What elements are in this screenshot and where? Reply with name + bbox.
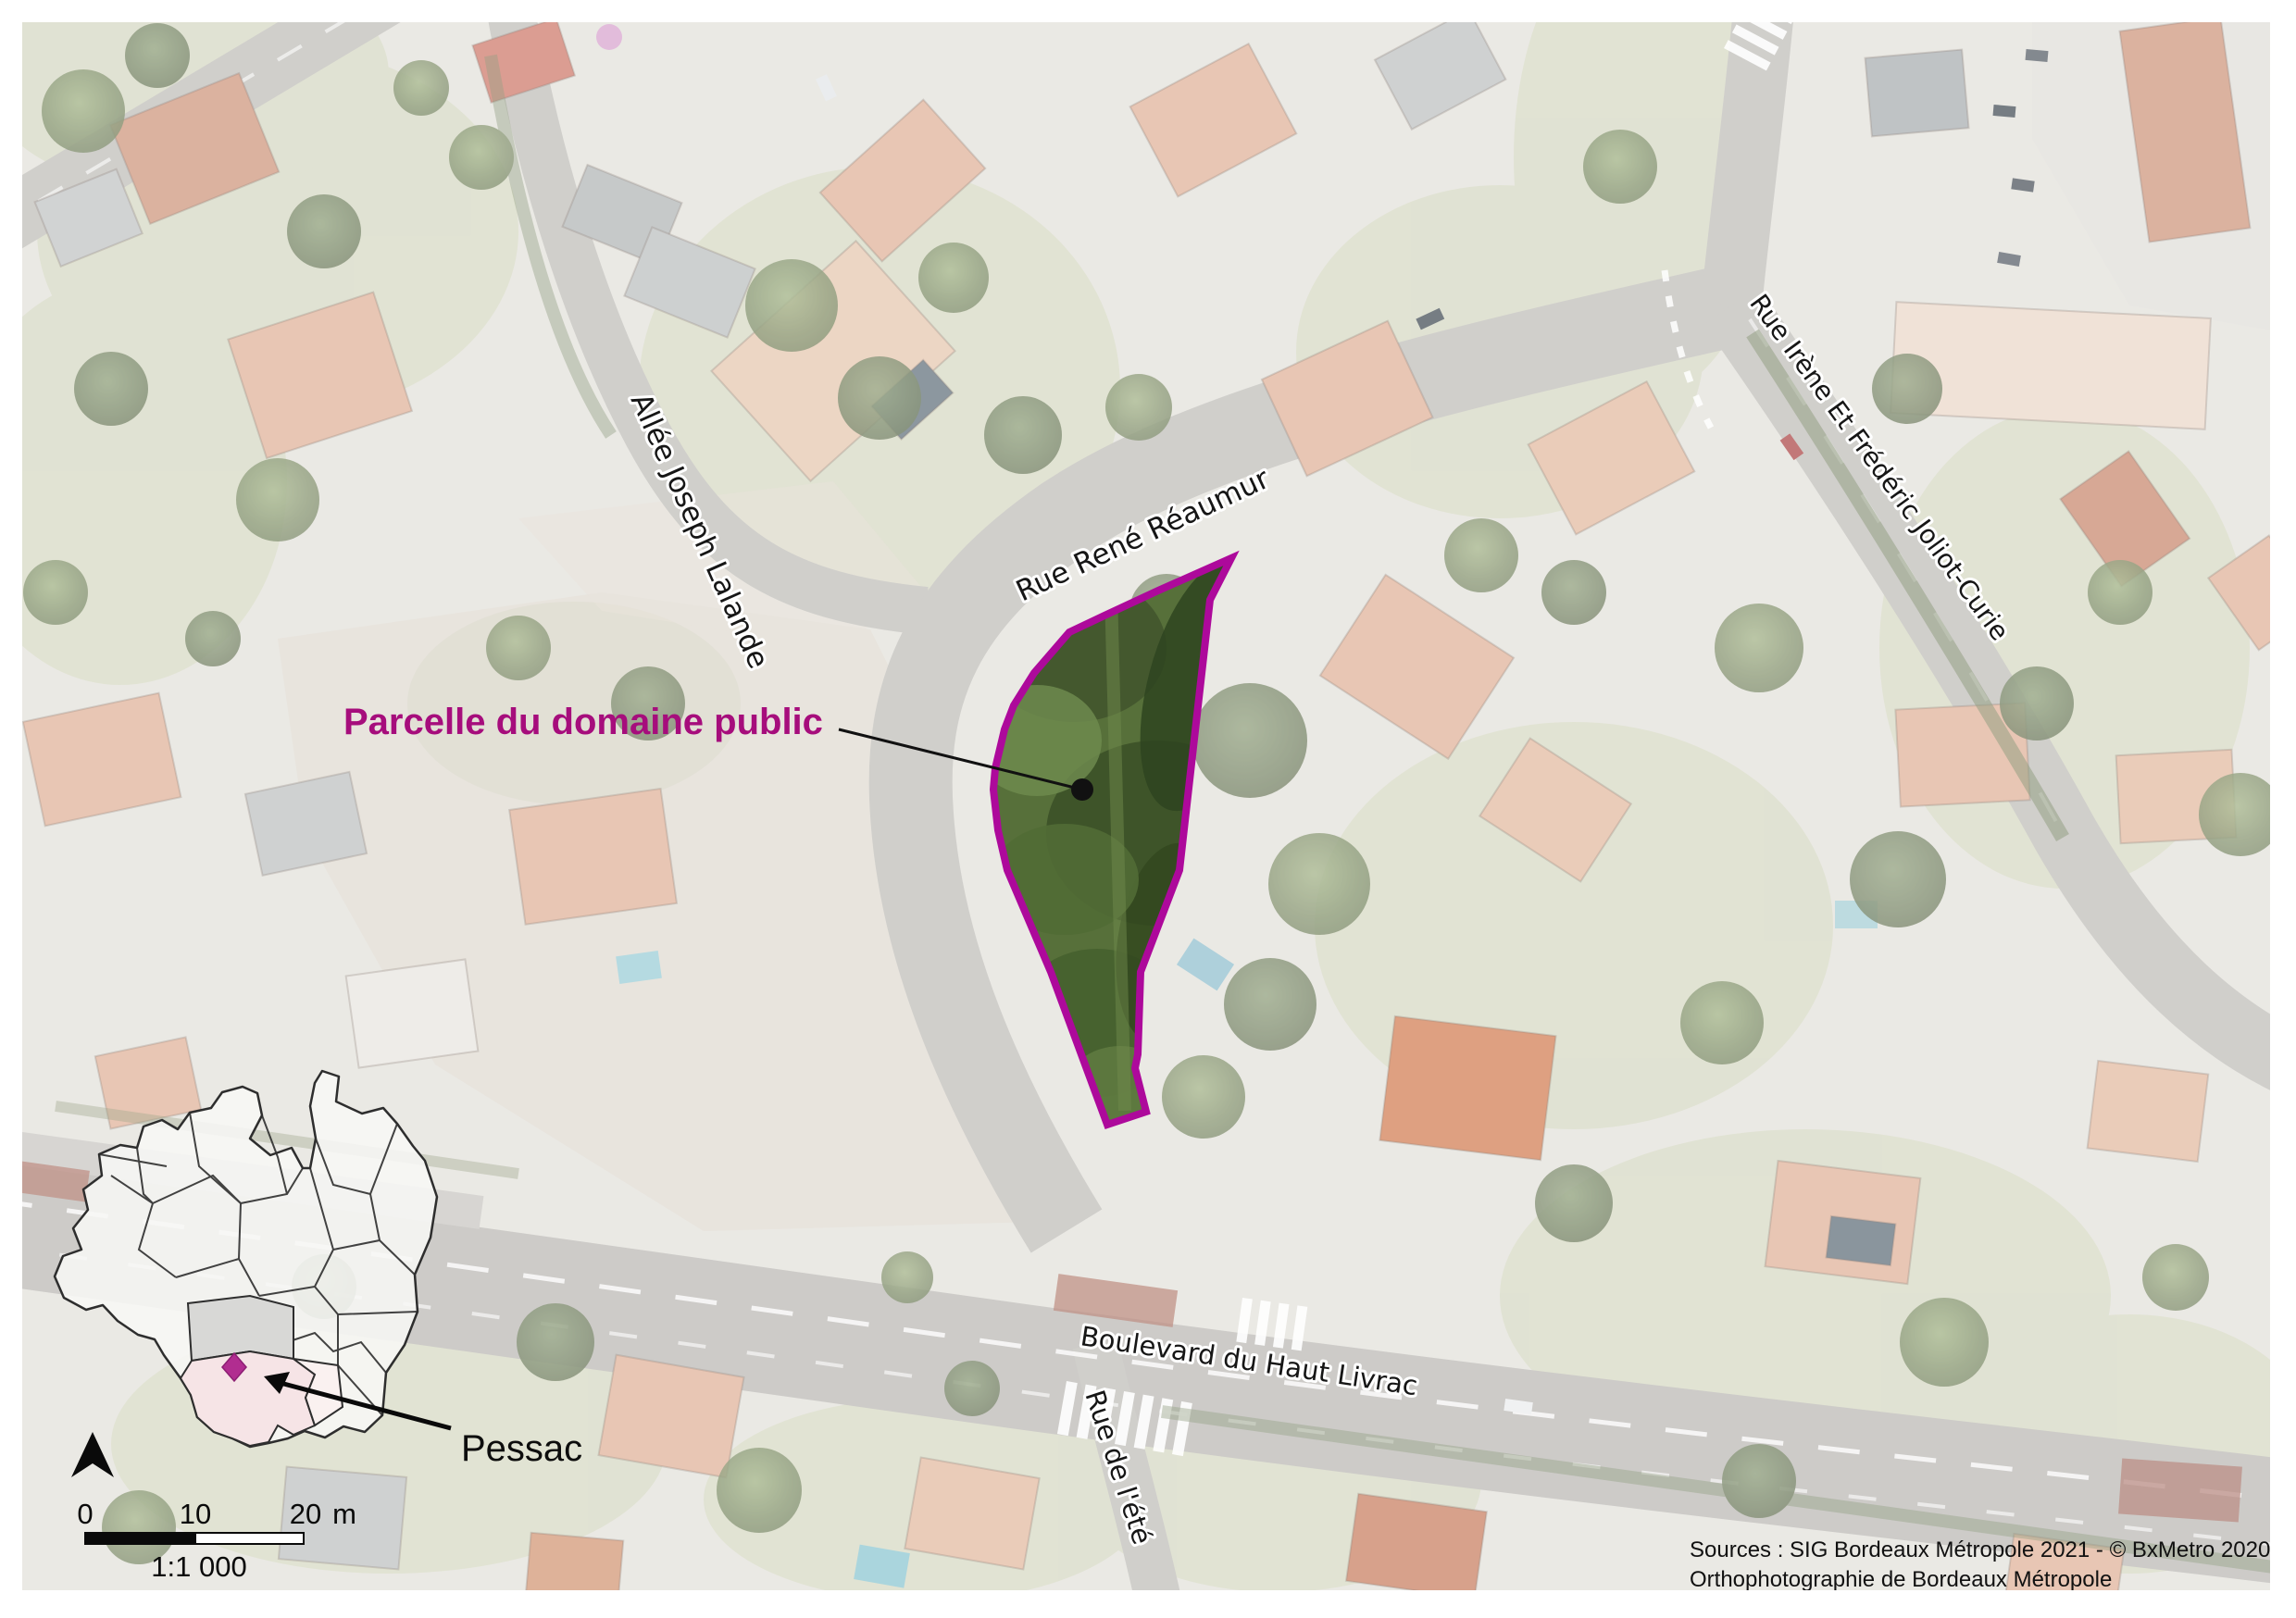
map-canvas: Allée Joseph Lalande Rue René Réaumur Ru… bbox=[0, 0, 2296, 1618]
inset-commune-label: Pessac bbox=[461, 1428, 582, 1469]
parcel-leader-dot bbox=[1071, 778, 1093, 801]
scale-bar-black-segment bbox=[85, 1533, 195, 1544]
sources-line-2: Orthophotographie de Bordeaux Métropole bbox=[1690, 1567, 2112, 1592]
sources-line-1: Sources : SIG Bordeaux Métropole 2021 - … bbox=[1690, 1537, 2277, 1562]
scale-unit: m bbox=[332, 1498, 356, 1530]
scale-tick-10: 10 bbox=[180, 1498, 211, 1530]
scale-tick-0: 0 bbox=[77, 1498, 93, 1530]
scale-tick-20: 20 bbox=[290, 1498, 321, 1530]
scale-ratio: 1:1 000 bbox=[151, 1550, 246, 1583]
parcel-label: Parcelle du domaine public bbox=[343, 702, 823, 742]
inset-cell-grey bbox=[188, 1296, 293, 1361]
map-page: Allée Joseph Lalande Rue René Réaumur Ru… bbox=[0, 0, 2296, 1618]
scale-bar-white-segment bbox=[195, 1533, 304, 1544]
